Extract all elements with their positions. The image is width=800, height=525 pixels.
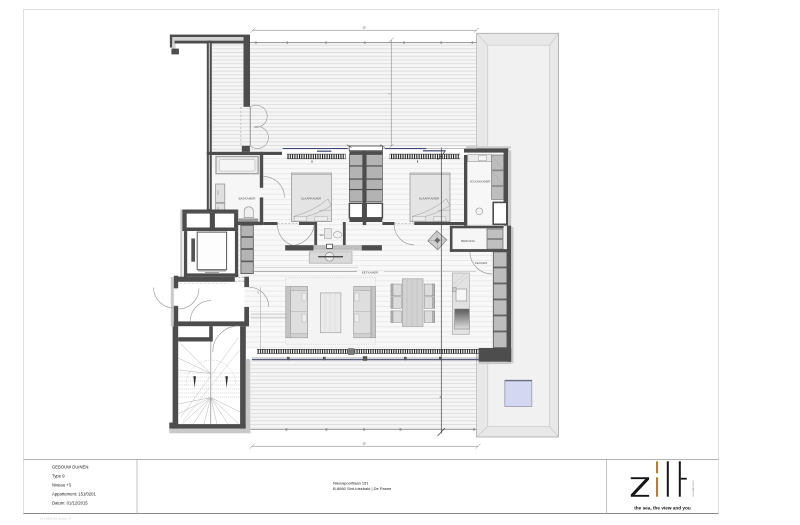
svg-text:Datum: 01/12/2015: Datum: 01/12/2015 bbox=[52, 501, 88, 506]
svg-text:Niveau +3: Niveau +3 bbox=[52, 483, 72, 488]
svg-text:Appartement: 151/0201: Appartement: 151/0201 bbox=[52, 492, 96, 497]
svg-text:SLAAPKAMER: SLAAPKAMER bbox=[301, 197, 322, 201]
svg-text:151-0201 B3 niveau +3: 151-0201 B3 niveau +3 bbox=[40, 517, 71, 521]
svg-text:28: 28 bbox=[362, 442, 366, 446]
svg-text:SLAAPKAMER: SLAAPKAMER bbox=[419, 197, 440, 201]
svg-text:residences: residences bbox=[691, 480, 695, 497]
svg-text:28: 28 bbox=[362, 26, 366, 30]
svg-text:Nieuwpoortlaan 151: Nieuwpoortlaan 151 bbox=[333, 481, 369, 486]
svg-text:the sea, the view and you: the sea, the view and you bbox=[634, 505, 691, 510]
svg-text:DOUCHEKAMER: DOUCHEKAMER bbox=[470, 180, 491, 184]
svg-text:BADKAMER: BADKAMER bbox=[239, 197, 257, 201]
svg-text:EETKAMER: EETKAMER bbox=[362, 271, 379, 275]
svg-text:GEBOUW DUINEN:: GEBOUW DUINEN: bbox=[52, 465, 89, 470]
svg-text:WC: WC bbox=[320, 233, 324, 237]
svg-text:BERGING: BERGING bbox=[461, 239, 476, 243]
svg-text:B-8660 Sint-Idesbald | De Pann: B-8660 Sint-Idesbald | De Panne bbox=[333, 486, 392, 491]
svg-text:KEUKEN: KEUKEN bbox=[475, 261, 487, 265]
svg-text:Type 9: Type 9 bbox=[52, 474, 65, 479]
